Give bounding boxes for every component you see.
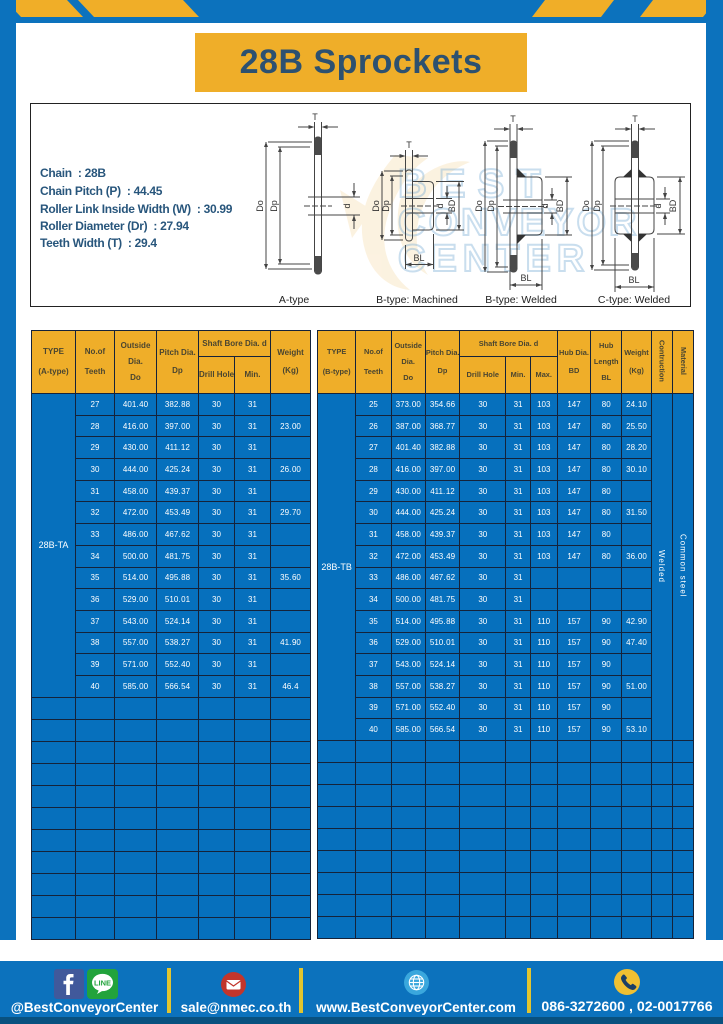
- svg-text:Do: Do: [255, 200, 265, 212]
- svg-text:BD: BD: [668, 199, 678, 212]
- svg-text:BD: BD: [555, 199, 565, 212]
- svg-text:Do: Do: [581, 200, 591, 212]
- svg-text:BL: BL: [628, 275, 639, 285]
- svg-text:d: d: [342, 203, 352, 208]
- svg-text:Dp: Dp: [486, 200, 496, 212]
- svg-text:Roller Diameter (Dr) : 27.94: Roller Diameter (Dr) : 27.94: [40, 219, 189, 233]
- svg-text:T: T: [406, 140, 412, 150]
- svg-text:BL: BL: [520, 273, 531, 283]
- svg-text:LINE: LINE: [94, 979, 111, 988]
- svg-text:T: T: [312, 112, 318, 122]
- svg-text:Teeth Width (T) : 29.4: Teeth Width (T) : 29.4: [40, 236, 157, 250]
- svg-text:B-type: Machined: B-type: Machined: [376, 294, 458, 306]
- svg-text:T: T: [510, 114, 516, 124]
- svg-text:Roller Link Inside Width (W): Roller Link Inside Width (W) : 30.99: [40, 202, 233, 216]
- svg-text:d: d: [540, 203, 550, 208]
- svg-text:Dp: Dp: [269, 200, 279, 212]
- svg-text:Do: Do: [474, 200, 484, 212]
- svg-text:d: d: [653, 203, 663, 208]
- svg-text:A-type: A-type: [279, 294, 310, 306]
- svg-text:BL: BL: [413, 253, 424, 263]
- svg-text:T: T: [632, 114, 638, 124]
- svg-text:Chain Pitch (P) : 44.45: Chain Pitch (P) : 44.45: [40, 184, 163, 198]
- svg-text:Do: Do: [371, 200, 381, 212]
- svg-text:Chain : 28B: Chain : 28B: [40, 166, 106, 180]
- svg-text:B-type: Welded: B-type: Welded: [485, 294, 557, 306]
- svg-text:Dp: Dp: [592, 200, 602, 212]
- svg-text:d: d: [435, 203, 445, 208]
- svg-text:Dp: Dp: [381, 200, 391, 212]
- svg-text:C-type: Welded: C-type: Welded: [598, 294, 670, 306]
- svg-text:CENTER: CENTER: [398, 238, 590, 280]
- svg-text:BD: BD: [447, 199, 457, 212]
- svg-text:BEST: BEST: [398, 162, 553, 206]
